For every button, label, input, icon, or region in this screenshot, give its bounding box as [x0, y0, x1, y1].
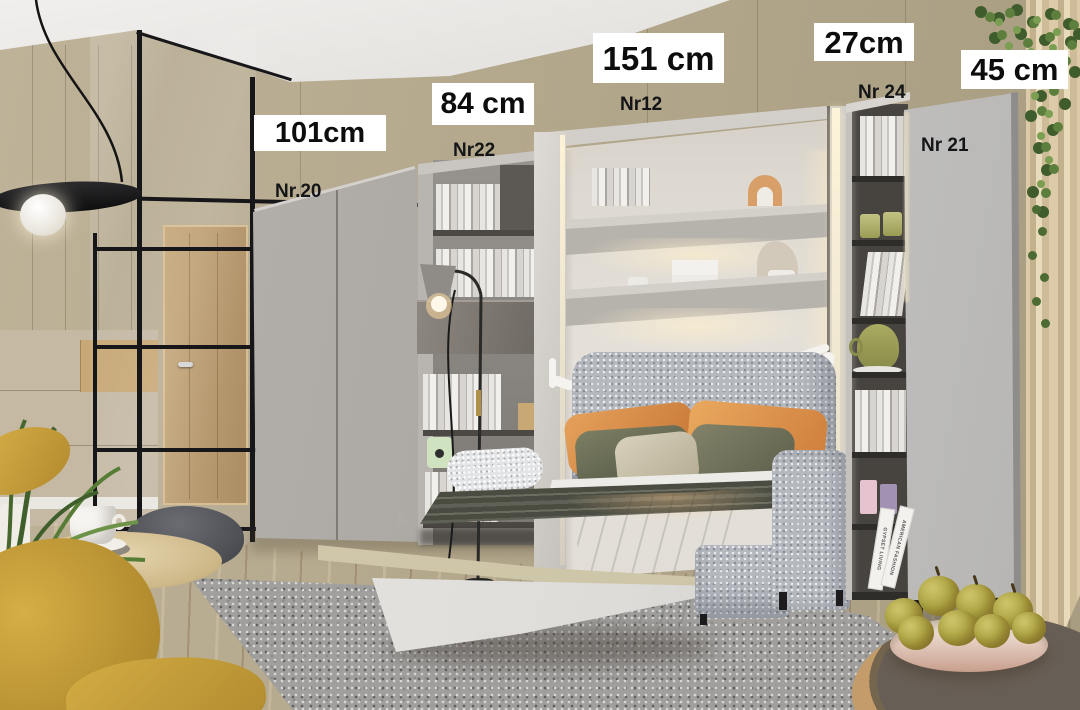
wall-seam: [757, 0, 758, 118]
shelf-board: [852, 318, 908, 324]
shelf-board: [852, 372, 908, 378]
item-number-nr20: Nr.20: [275, 182, 321, 201]
item-number-nr24: Nr 24: [858, 83, 906, 102]
pear: [1012, 612, 1046, 644]
book-row: [855, 390, 906, 452]
room-scene: GYPSET LIVING AMERICAN FASHION: [0, 0, 1080, 710]
dimension-label-45cm: 45 cm: [961, 50, 1068, 89]
wardrobe-door-gap: [336, 190, 338, 540]
partition-frame-bar: [93, 247, 256, 251]
pear: [938, 610, 978, 646]
shelf-board: [852, 176, 908, 182]
book-row: [860, 116, 905, 176]
led-glow: [580, 308, 815, 352]
dimension-label-27cm: 27cm: [814, 23, 914, 61]
book-row: [860, 252, 910, 316]
olive-teapot: [857, 324, 899, 370]
partition-frame-bar: [93, 345, 256, 349]
hanging-plant: [985, 12, 995, 22]
dimension-label-84cm: 84 cm: [432, 83, 534, 125]
arch-decor: [748, 175, 782, 206]
book-row: [436, 184, 500, 230]
decor-books: [592, 168, 650, 206]
pear: [898, 616, 934, 650]
white-bolster: [446, 447, 544, 493]
led-glow: [904, 112, 909, 302]
hanging-plant-trail: [1032, 205, 1041, 214]
sofa-leg: [836, 590, 843, 606]
item-number-nr22: Nr22: [453, 141, 495, 160]
dimension-label-101cm: 101cm: [254, 115, 386, 151]
pink-candle: [860, 480, 877, 514]
sofa-leg: [700, 614, 707, 625]
sofa-armrest-right: [772, 450, 850, 610]
pendant-lamp-cable: [0, 0, 150, 200]
pendant-lamp-bulb: [20, 194, 66, 236]
item-number-nr21: Nr 21: [921, 136, 969, 155]
shelf-board: [852, 452, 908, 458]
shelf-board: [433, 230, 548, 236]
sofa-leg: [779, 592, 787, 610]
teapot-handle: [849, 338, 863, 356]
arch-decor-inner: [757, 187, 773, 206]
item-number-nr12: Nr12: [620, 95, 662, 114]
olive-cup: [860, 214, 880, 238]
hanging-plant: [995, 18, 1003, 26]
shelf-board: [852, 240, 908, 246]
dimension-label-151cm: 151 cm: [593, 33, 724, 83]
pear: [974, 614, 1010, 648]
olive-cup: [883, 212, 902, 236]
